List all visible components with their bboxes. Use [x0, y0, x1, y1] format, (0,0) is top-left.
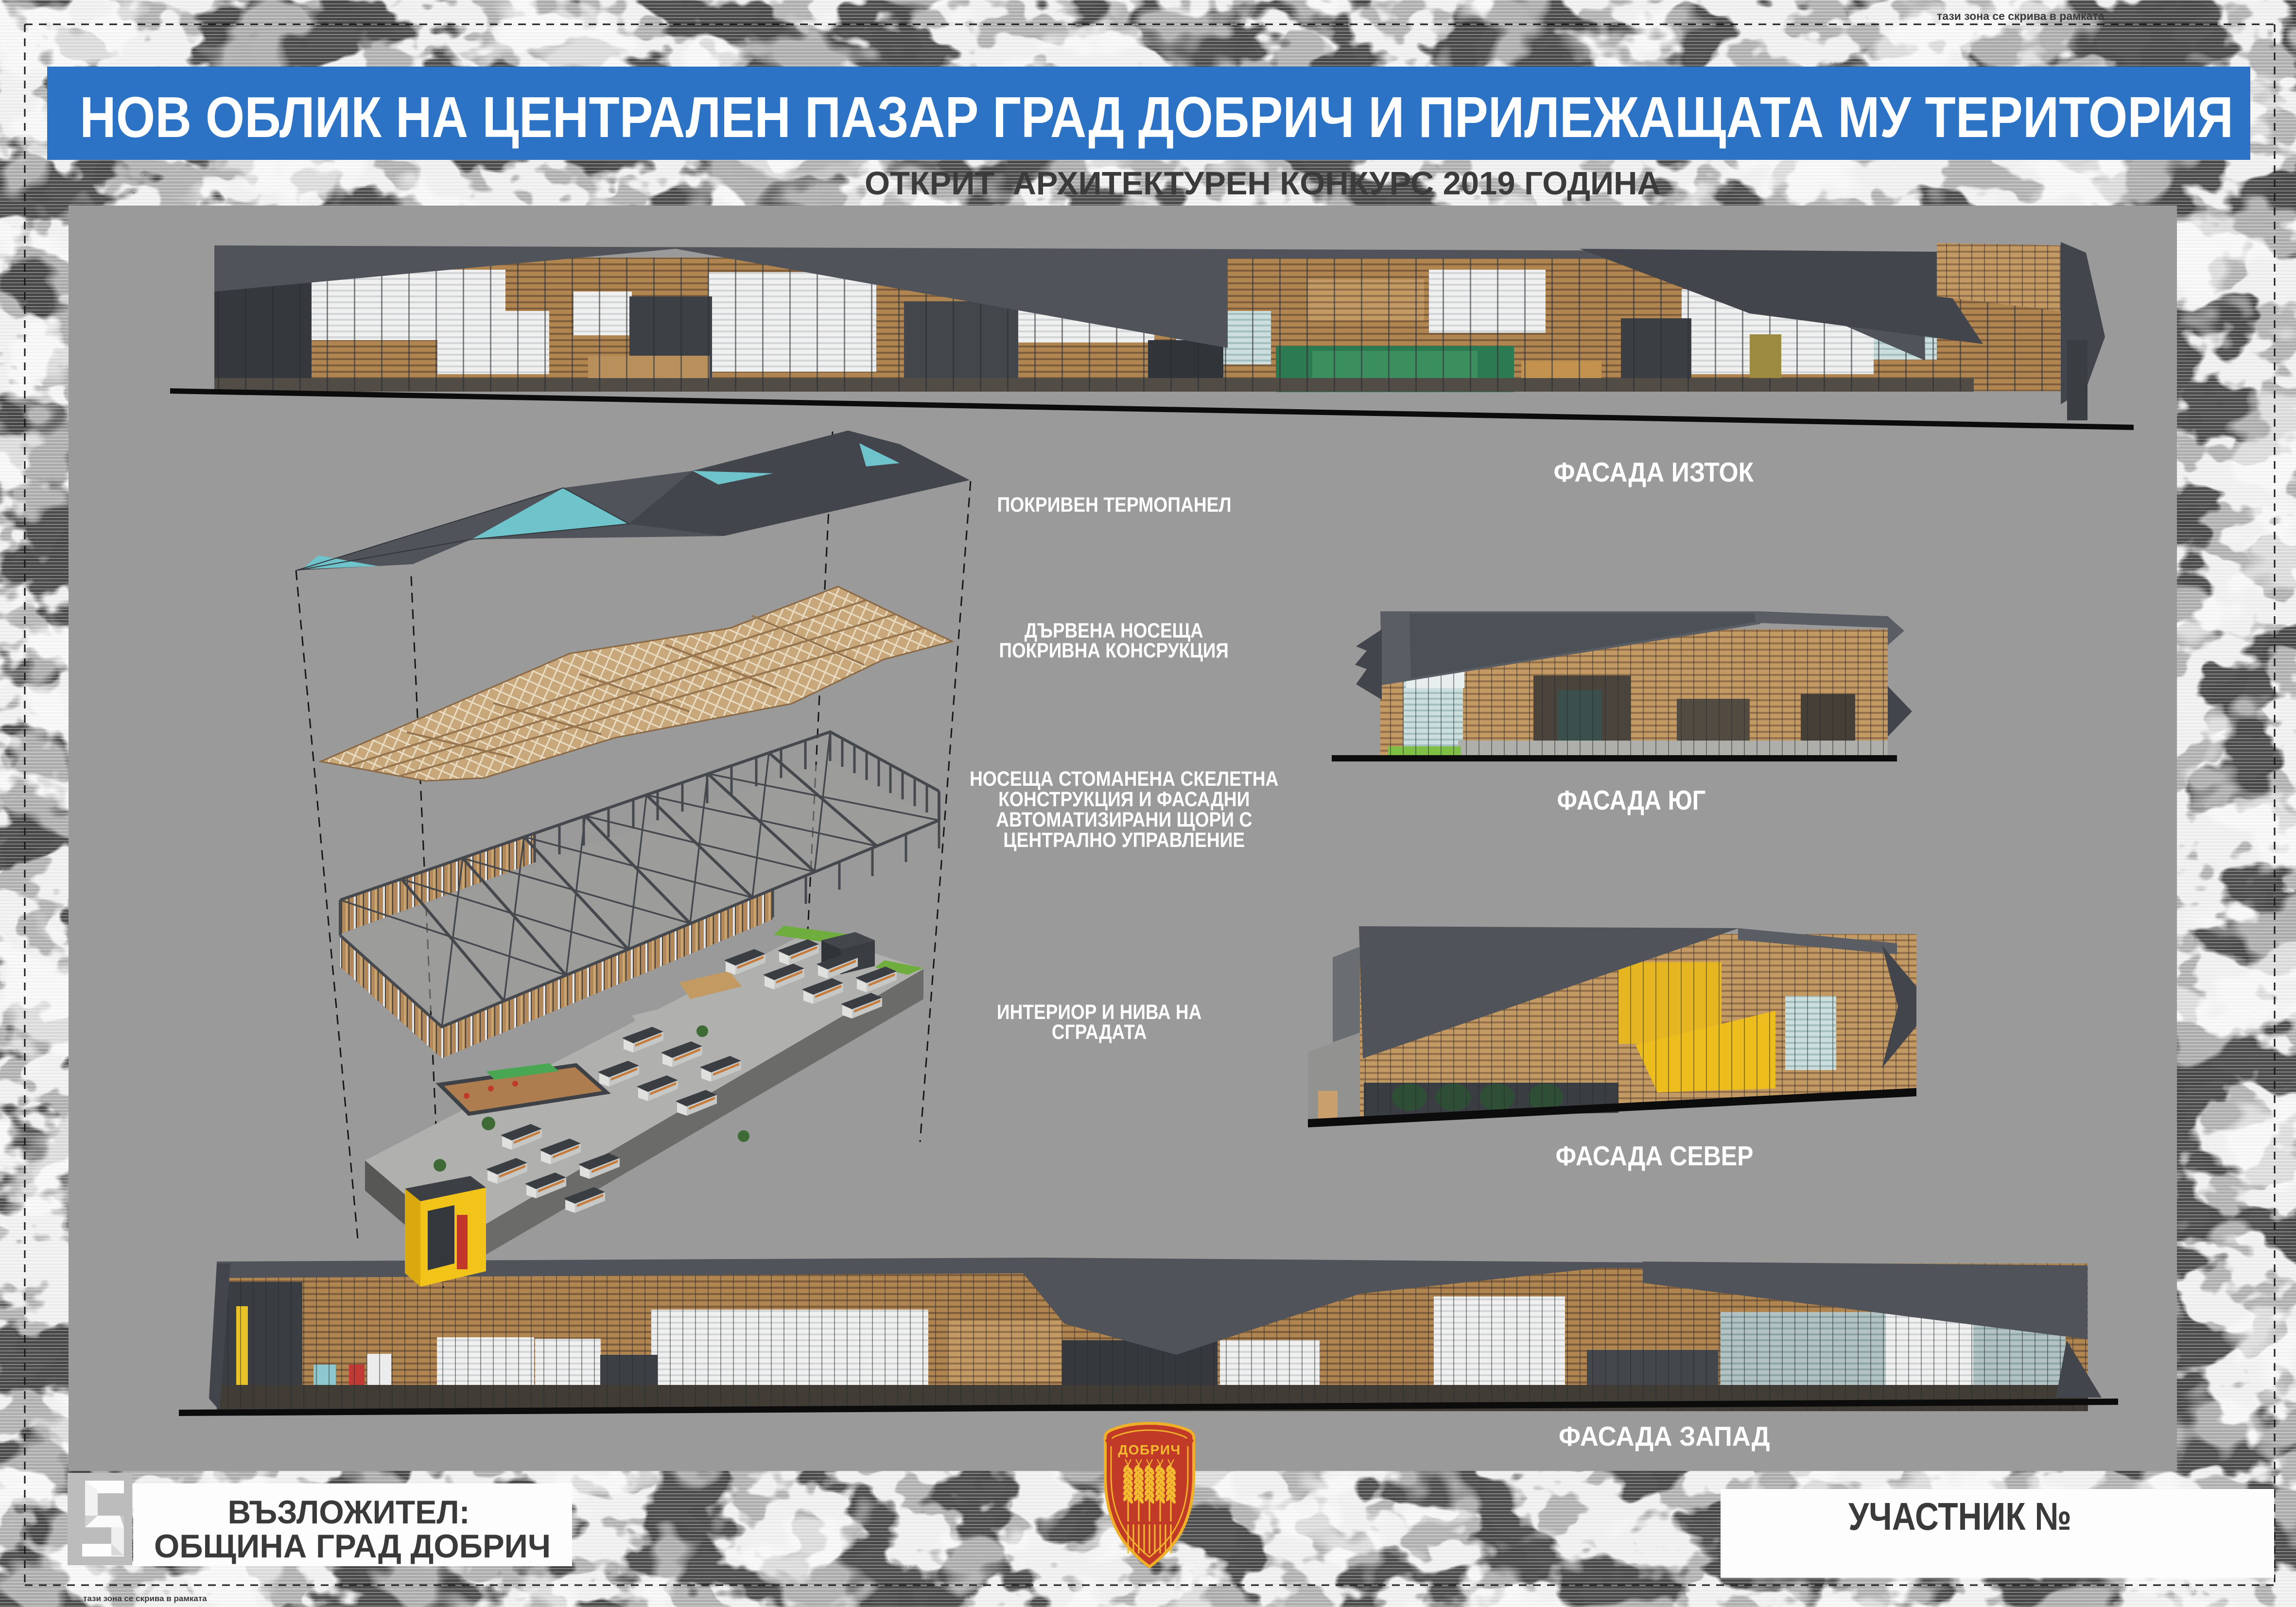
svg-text:ДОБРИЧ: ДОБРИЧ — [1118, 1442, 1181, 1457]
